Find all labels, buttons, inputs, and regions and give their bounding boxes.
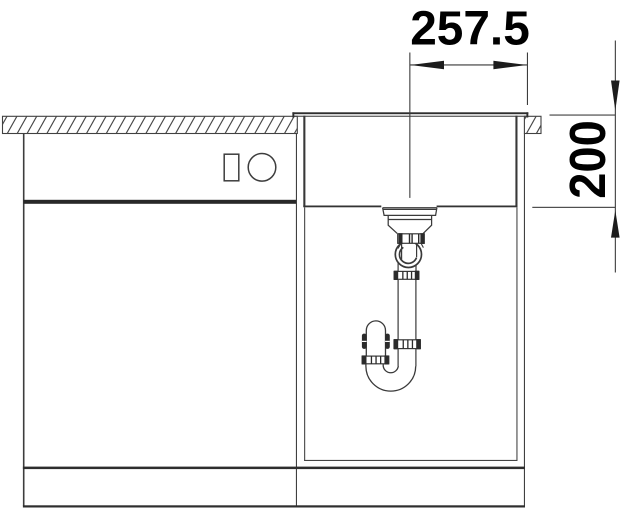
svg-text:257.5: 257.5 [410, 2, 530, 55]
svg-text:200: 200 [561, 120, 617, 198]
